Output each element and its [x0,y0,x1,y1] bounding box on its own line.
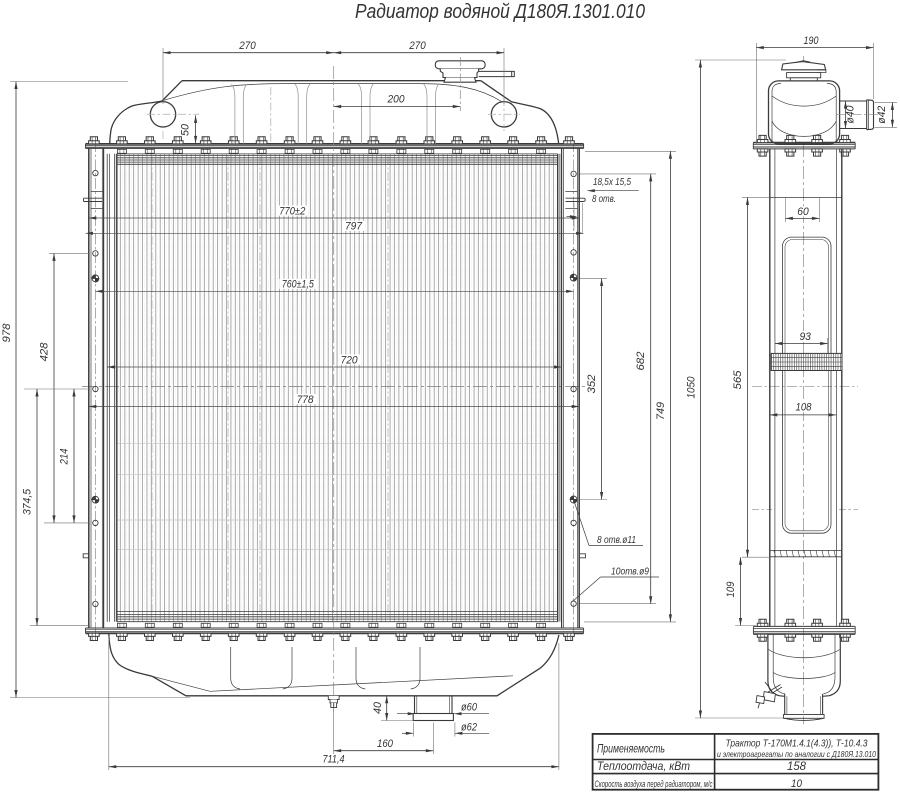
svg-text:Радиатор водяной Д180Я.1301.01: Радиатор водяной Д180Я.1301.010 [355,1,645,23]
svg-text:190: 190 [804,35,820,47]
svg-text:Трактор Т-170М1.4.1(4.3)), Т: Трактор Т-170М1.4.1(4.3)), Т-10.4.3 [726,738,868,750]
svg-text:50: 50 [180,123,192,136]
svg-text:797: 797 [345,221,363,233]
svg-text:720: 720 [341,354,359,366]
svg-text:270: 270 [408,40,426,52]
svg-text:711,4: 711,4 [323,754,345,766]
svg-text:200: 200 [387,94,406,106]
svg-text:158: 158 [787,761,807,773]
svg-text:18,5х 15,5: 18,5х 15,5 [593,176,631,188]
svg-text:778: 778 [297,394,315,406]
svg-text:ø40: ø40 [845,105,857,124]
svg-text:ø60: ø60 [461,701,478,713]
svg-text:10: 10 [791,778,803,790]
svg-text:8 отв.ø11: 8 отв.ø11 [597,534,636,546]
svg-text:108: 108 [796,401,813,413]
svg-text:Теплоотдача, кВт: Теплоотдача, кВт [597,761,690,773]
svg-text:160: 160 [377,738,394,750]
svg-text:Применяемость: Применяемость [597,744,665,756]
svg-text:и электроагрегаты по аналогии: и электроагрегаты по аналогии с Д180Я.13… [717,749,876,759]
svg-text:270: 270 [238,40,256,52]
svg-text:10отв.ø9: 10отв.ø9 [611,565,649,577]
svg-text:428: 428 [39,342,51,362]
svg-text:93: 93 [799,331,811,343]
svg-text:ø62: ø62 [461,721,477,733]
svg-text:374,5: 374,5 [22,488,34,515]
svg-text:565: 565 [732,370,744,390]
svg-text:40: 40 [372,701,384,714]
svg-text:760±1,5: 760±1,5 [282,279,315,291]
svg-text:682: 682 [635,352,647,371]
svg-text:749: 749 [655,402,667,420]
svg-text:109: 109 [725,582,737,598]
svg-text:8 отв.: 8 отв. [592,193,616,205]
svg-text:352: 352 [586,375,598,394]
svg-text:60: 60 [797,206,809,218]
svg-text:214: 214 [59,449,71,466]
svg-text:1050: 1050 [685,376,697,399]
svg-text:ø42: ø42 [876,106,888,124]
svg-text:770±2: 770±2 [279,205,305,217]
svg-text:Скорость воздуха перед радиато: Скорость воздуха перед радиатором, м/с [595,779,713,789]
svg-text:978: 978 [1,323,13,343]
